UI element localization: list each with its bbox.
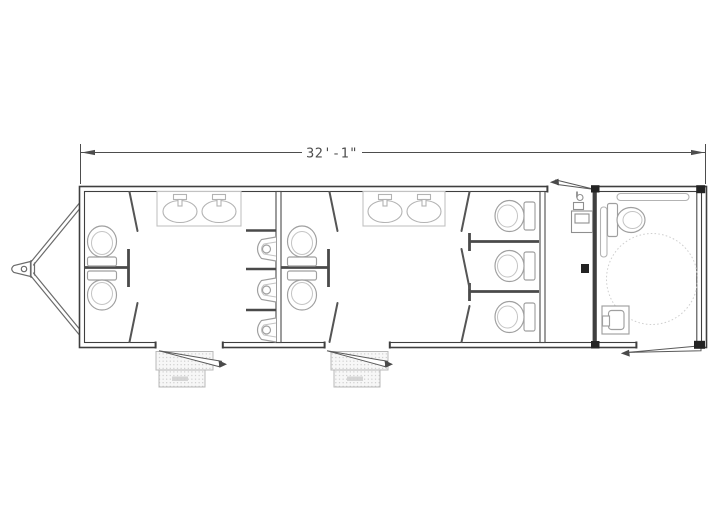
coupler-hole	[21, 266, 26, 271]
faucet	[213, 195, 226, 200]
step-marking	[172, 377, 188, 382]
door-swing-arrow-rear-bottom	[621, 350, 630, 357]
wall-between-restrooms	[276, 192, 281, 343]
faucet	[418, 195, 431, 200]
dimension-arrow-left	[82, 150, 96, 155]
ada-toilet-tank	[608, 204, 618, 237]
toilet-tank	[524, 303, 535, 331]
toilet-tank	[524, 252, 535, 280]
door-lock	[581, 264, 589, 273]
corner-post	[696, 185, 705, 193]
ada-sink-basin	[609, 311, 625, 330]
urinal-drain	[263, 326, 271, 334]
entry-steps-left	[156, 351, 227, 387]
entry-steps-center	[327, 351, 393, 387]
door-hinge-post	[694, 341, 705, 349]
dimension-arrow-right	[691, 150, 705, 155]
door-opening-left	[156, 341, 222, 350]
toilet-tank	[288, 257, 317, 266]
urinal-drain	[263, 286, 271, 294]
utility-valve	[577, 195, 583, 201]
grab-bar-top	[617, 194, 689, 201]
door-hinge-post	[591, 185, 600, 192]
toilet-tank	[524, 202, 535, 230]
door-opening-center	[325, 341, 389, 350]
urinal-drain	[263, 245, 271, 253]
corner-post	[591, 341, 600, 349]
door-swing-arrow-left	[219, 360, 228, 368]
toilet-tank	[288, 271, 317, 280]
overall-length-dimension: 32'-1"	[81, 144, 706, 184]
ada-sink-tab	[603, 316, 610, 326]
stall-toilets-right-bank	[495, 201, 535, 333]
sink-counter-center	[363, 192, 445, 227]
step-marking	[347, 377, 363, 382]
faucet	[379, 195, 392, 200]
sink-counter-left	[157, 192, 241, 227]
overall-length-label: 32'-1"	[306, 146, 358, 162]
floor-plan-drawing: 32'-1"	[0, 0, 710, 530]
floor-plan-canvas: 32'-1"	[0, 0, 710, 530]
wall-right-of-stalls	[540, 192, 545, 343]
faucet	[174, 195, 187, 200]
door-swing-arrow-center	[385, 360, 394, 368]
toilet-tank	[88, 257, 117, 266]
utility-box	[574, 203, 584, 210]
grab-bar-side	[601, 207, 608, 257]
toilet-tank	[88, 271, 117, 280]
trailer-hitch	[12, 198, 84, 341]
door-swing-arrow-rear-top	[550, 179, 559, 186]
